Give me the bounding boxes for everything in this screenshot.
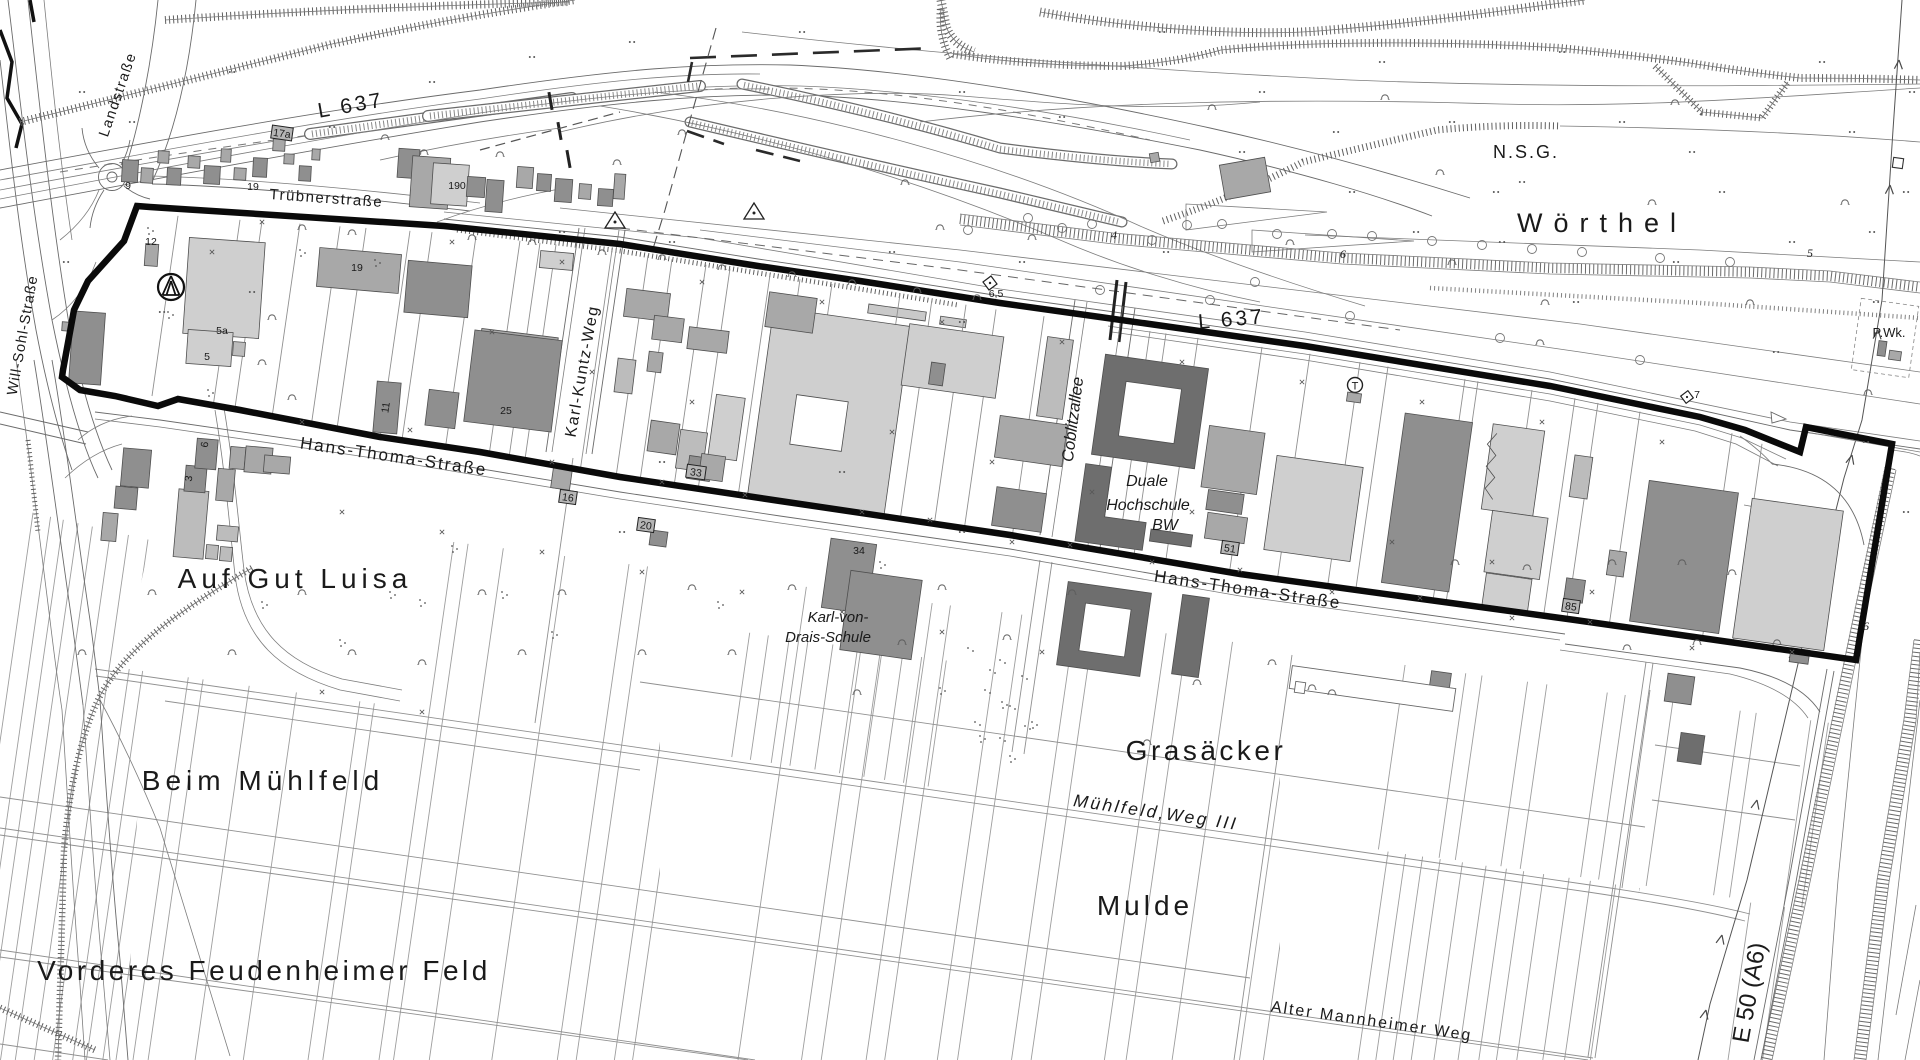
svg-text:5: 5 xyxy=(204,351,210,363)
svg-text:51: 51 xyxy=(1223,542,1236,556)
svg-text:Mulde: Mulde xyxy=(1097,890,1193,921)
svg-text:9: 9 xyxy=(125,180,131,192)
svg-text:6,5: 6,5 xyxy=(989,288,1004,300)
svg-text:P.Wk.: P.Wk. xyxy=(1873,325,1906,340)
svg-text:4: 4 xyxy=(1111,228,1117,242)
svg-text:Drais-Schule: Drais-Schule xyxy=(785,629,871,646)
svg-text:BW: BW xyxy=(1152,517,1180,534)
svg-text:Duale: Duale xyxy=(1126,473,1168,490)
svg-text:20: 20 xyxy=(639,519,652,533)
svg-text:12: 12 xyxy=(145,236,157,248)
svg-text:6: 6 xyxy=(1340,247,1346,261)
svg-text:N.S.G.: N.S.G. xyxy=(1493,142,1559,162)
svg-text:Vorderes Feudenheimer Feld: Vorderes Feudenheimer Feld xyxy=(37,955,491,986)
svg-text:33: 33 xyxy=(689,466,702,480)
svg-text:85: 85 xyxy=(1564,600,1577,614)
svg-text:17a: 17a xyxy=(272,127,291,141)
svg-text:Hochschule: Hochschule xyxy=(1106,497,1190,514)
svg-text:19: 19 xyxy=(247,181,259,193)
svg-text:Wörthel: Wörthel xyxy=(1517,208,1687,238)
svg-text:11: 11 xyxy=(379,401,392,414)
svg-text:5: 5 xyxy=(1807,246,1813,260)
svg-text:Karl-von-: Karl-von- xyxy=(808,609,869,626)
svg-text:34: 34 xyxy=(853,545,865,557)
svg-text:Beim Mühlfeld: Beim Mühlfeld xyxy=(142,765,384,796)
svg-text:T: T xyxy=(1352,381,1359,393)
svg-text:5a: 5a xyxy=(216,325,228,337)
svg-text:7: 7 xyxy=(1694,389,1700,401)
svg-text:Auf Gut Luisa: Auf Gut Luisa xyxy=(178,563,413,594)
svg-text:25: 25 xyxy=(500,405,512,417)
svg-text:190: 190 xyxy=(448,180,466,192)
svg-text:19: 19 xyxy=(351,262,363,274)
svg-text:6: 6 xyxy=(1863,619,1869,633)
svg-text:Grasäcker: Grasäcker xyxy=(1126,735,1287,766)
svg-text:16: 16 xyxy=(561,491,574,505)
